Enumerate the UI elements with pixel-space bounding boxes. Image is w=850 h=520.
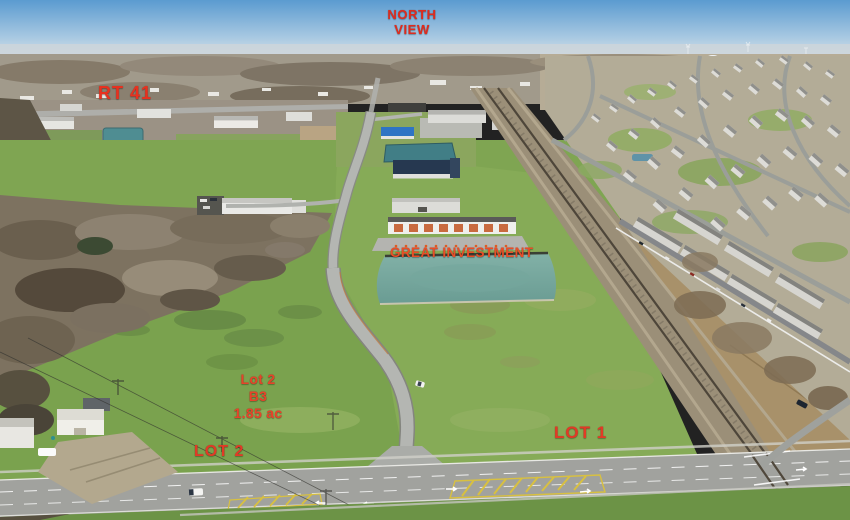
retention-pond xyxy=(377,253,556,304)
annotation-north-line1: NORTH xyxy=(372,8,452,23)
annotation-lot2-acreage: 1.85 ac xyxy=(218,405,298,422)
dark-roof-building xyxy=(388,103,426,112)
annotation-north-view: NORTH VIEW xyxy=(372,8,452,37)
annotation-north-line2: VIEW xyxy=(372,23,452,38)
campus-pond xyxy=(384,143,456,162)
white-van xyxy=(38,448,56,456)
annotation-rt41: RT 41 xyxy=(98,83,152,103)
annotation-lot2-zoning: B3 xyxy=(218,388,298,405)
car-on-main-road xyxy=(189,488,203,496)
annotation-lot2-name: Lot 2 xyxy=(218,371,298,388)
aerial-photo-stage: NORTH VIEW RT 41 GREAT INVESTMENT Lot 2 … xyxy=(0,0,850,520)
annotation-lot1: LOT 1 xyxy=(554,423,607,442)
annotation-great-investment: GREAT INVESTMENT xyxy=(390,245,533,260)
annotation-lot2-details: Lot 2 B3 1.85 ac xyxy=(218,371,298,422)
strip-mall-building xyxy=(388,217,516,234)
blue-barrel xyxy=(51,436,55,440)
barn xyxy=(57,409,104,435)
annotation-lot2: LOT 2 xyxy=(194,443,244,461)
